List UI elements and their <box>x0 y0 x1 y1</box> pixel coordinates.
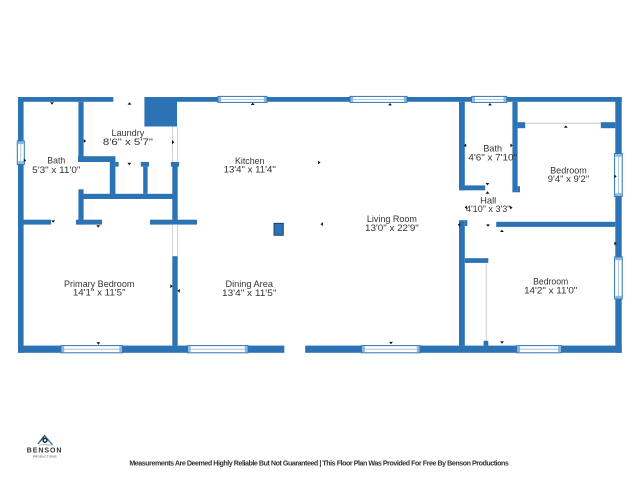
svg-text:9'4" x 9'2": 9'4" x 9'2" <box>548 174 589 184</box>
svg-text:5'3" x 11'0": 5'3" x 11'0" <box>32 165 80 175</box>
svg-text:Bath: Bath <box>47 155 65 165</box>
svg-text:4'10" x 3'3": 4'10" x 3'3" <box>466 204 511 214</box>
svg-text:14'1" x 11'5": 14'1" x 11'5" <box>73 288 126 298</box>
svg-text:13'4" x 11'5": 13'4" x 11'5" <box>222 288 276 298</box>
svg-text:13'4" x 11'4": 13'4" x 11'4" <box>224 165 276 175</box>
svg-text:13'0" x 22'9": 13'0" x 22'9" <box>365 223 419 233</box>
svg-text:BENSON: BENSON <box>27 447 63 454</box>
svg-text:4'6" x 7'10": 4'6" x 7'10" <box>468 152 517 162</box>
svg-text:14'2" x 11'0": 14'2" x 11'0" <box>524 286 577 296</box>
svg-text:Measurements Are Deemed Highly: Measurements Are Deemed Highly Reliable … <box>129 459 509 467</box>
svg-text:8'6" x 5'7": 8'6" x 5'7" <box>103 137 153 147</box>
svg-text:PRODUCTIONS: PRODUCTIONS <box>33 454 57 458</box>
